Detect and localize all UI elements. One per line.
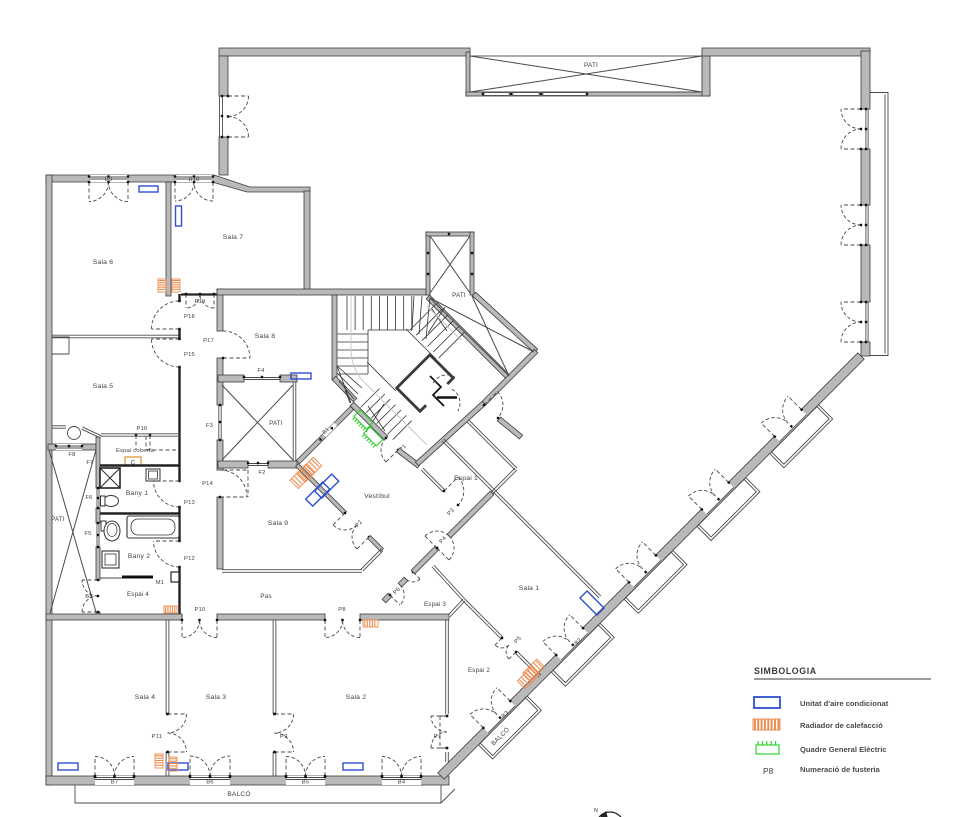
svg-text:F3: F3 bbox=[206, 423, 213, 429]
svg-text:Sala 5: Sala 5 bbox=[93, 383, 113, 390]
svg-text:P15: P15 bbox=[184, 352, 195, 358]
svg-text:Sala 8: Sala 8 bbox=[255, 333, 275, 340]
svg-text:Sala 9: Sala 9 bbox=[268, 520, 288, 527]
svg-text:P12: P12 bbox=[184, 556, 195, 562]
svg-text:F8: F8 bbox=[68, 452, 75, 458]
svg-text:Espai 3: Espai 3 bbox=[424, 601, 446, 608]
svg-text:B7: B7 bbox=[111, 780, 119, 786]
svg-text:F2: F2 bbox=[258, 470, 265, 476]
svg-text:Vestíbul: Vestíbul bbox=[364, 493, 390, 500]
svg-text:Sala 1: Sala 1 bbox=[519, 585, 539, 592]
svg-text:B6: B6 bbox=[206, 780, 214, 786]
svg-text:BALCÓ: BALCÓ bbox=[227, 789, 250, 798]
svg-text:F6: F6 bbox=[85, 495, 92, 501]
svg-text:PATI: PATI bbox=[584, 62, 598, 69]
svg-text:P7: P7 bbox=[434, 734, 442, 740]
svg-text:P19: P19 bbox=[195, 299, 206, 305]
svg-text:Sala 3: Sala 3 bbox=[206, 694, 226, 701]
svg-text:P13: P13 bbox=[184, 500, 195, 506]
svg-text:P14: P14 bbox=[202, 481, 213, 487]
svg-text:B5: B5 bbox=[302, 780, 310, 786]
svg-text:Radiador de calefacció: Radiador de calefacció bbox=[800, 721, 883, 730]
svg-text:B4: B4 bbox=[398, 780, 406, 786]
svg-text:P8: P8 bbox=[338, 607, 346, 613]
svg-text:Sala 2: Sala 2 bbox=[346, 694, 366, 701]
svg-text:PATI: PATI bbox=[269, 420, 283, 427]
svg-text:P8: P8 bbox=[763, 766, 774, 776]
svg-text:Espai coberta: Espai coberta bbox=[116, 448, 155, 454]
svg-text:P16: P16 bbox=[137, 426, 148, 432]
svg-text:N: N bbox=[594, 808, 598, 814]
svg-text:Unitat d'aire condicionat: Unitat d'aire condicionat bbox=[800, 699, 889, 708]
svg-text:P17: P17 bbox=[203, 338, 214, 344]
svg-text:B8: B8 bbox=[85, 594, 93, 600]
svg-text:P9: P9 bbox=[280, 734, 288, 740]
svg-text:PATI: PATI bbox=[51, 516, 65, 523]
svg-text:Sala 7: Sala 7 bbox=[223, 234, 243, 241]
svg-text:Espai 1: Espai 1 bbox=[454, 475, 478, 482]
svg-text:Pas: Pas bbox=[260, 593, 272, 600]
svg-text:Sala 4: Sala 4 bbox=[135, 694, 155, 701]
svg-text:Sala 6: Sala 6 bbox=[93, 259, 113, 266]
svg-text:Bany 2: Bany 2 bbox=[128, 553, 150, 560]
svg-text:M1: M1 bbox=[156, 580, 164, 586]
svg-text:Espai 2: Espai 2 bbox=[468, 667, 490, 674]
svg-text:F4: F4 bbox=[257, 368, 265, 374]
svg-text:P11: P11 bbox=[152, 734, 162, 740]
svg-text:SIMBOLOGIA: SIMBOLOGIA bbox=[754, 666, 817, 676]
svg-text:Quadre General Elèctric: Quadre General Elèctric bbox=[800, 745, 887, 754]
svg-text:F5: F5 bbox=[84, 531, 91, 537]
svg-text:Numeració de fusteria: Numeració de fusteria bbox=[800, 765, 881, 774]
svg-text:Espai 4: Espai 4 bbox=[127, 591, 149, 598]
svg-text:Bany 1: Bany 1 bbox=[126, 490, 148, 497]
svg-text:PATI: PATI bbox=[452, 292, 466, 299]
svg-text:B9: B9 bbox=[105, 177, 113, 183]
svg-text:P10: P10 bbox=[195, 607, 206, 613]
svg-text:P18: P18 bbox=[184, 314, 195, 320]
svg-text:B10: B10 bbox=[189, 177, 200, 183]
